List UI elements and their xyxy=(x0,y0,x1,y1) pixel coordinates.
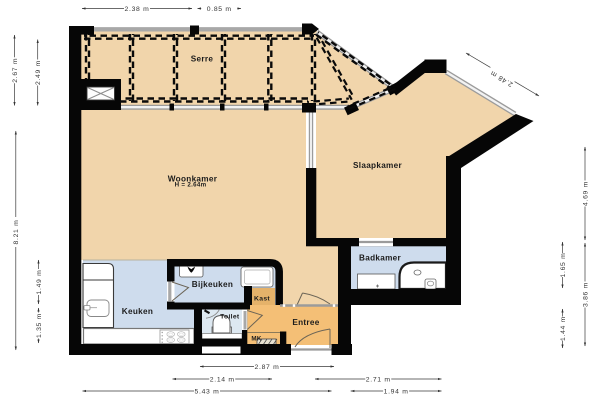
svg-text:5.43 m: 5.43 m xyxy=(195,388,220,395)
svg-text:Toilet: Toilet xyxy=(220,314,240,321)
svg-text:Kast: Kast xyxy=(254,296,270,303)
svg-text:2.67 m: 2.67 m xyxy=(12,58,19,83)
svg-text:4.69 m: 4.69 m xyxy=(582,181,589,206)
svg-text:Badkamer: Badkamer xyxy=(359,253,402,262)
svg-text:2.38 m: 2.38 m xyxy=(125,6,150,13)
svg-text:0.85 m: 0.85 m xyxy=(207,6,232,13)
svg-text:2.49 m: 2.49 m xyxy=(35,60,42,85)
svg-text:8.21 m: 8.21 m xyxy=(13,220,20,245)
svg-text:Entree: Entree xyxy=(292,318,319,327)
svg-text:3.86 m: 3.86 m xyxy=(582,282,589,307)
svg-text:1.44 m: 1.44 m xyxy=(560,316,567,341)
svg-text:Keuken: Keuken xyxy=(122,307,153,316)
svg-text:Slaapkamer: Slaapkamer xyxy=(353,161,402,170)
svg-text:1.35 m: 1.35 m xyxy=(36,313,43,338)
svg-text:H = 2.64m: H = 2.64m xyxy=(175,182,207,189)
svg-text:Serre: Serre xyxy=(191,55,214,64)
svg-text:1.65 m: 1.65 m xyxy=(560,253,567,278)
svg-text:2.14 m: 2.14 m xyxy=(210,376,235,383)
svg-text:Bijkeuken: Bijkeuken xyxy=(192,280,233,289)
svg-text:1.49 m: 1.49 m xyxy=(36,270,43,295)
svg-text:MK: MK xyxy=(251,336,261,343)
svg-text:2.87 m: 2.87 m xyxy=(255,364,280,371)
svg-text:2.71 m: 2.71 m xyxy=(366,376,391,383)
svg-text:1.94 m: 1.94 m xyxy=(384,388,409,395)
